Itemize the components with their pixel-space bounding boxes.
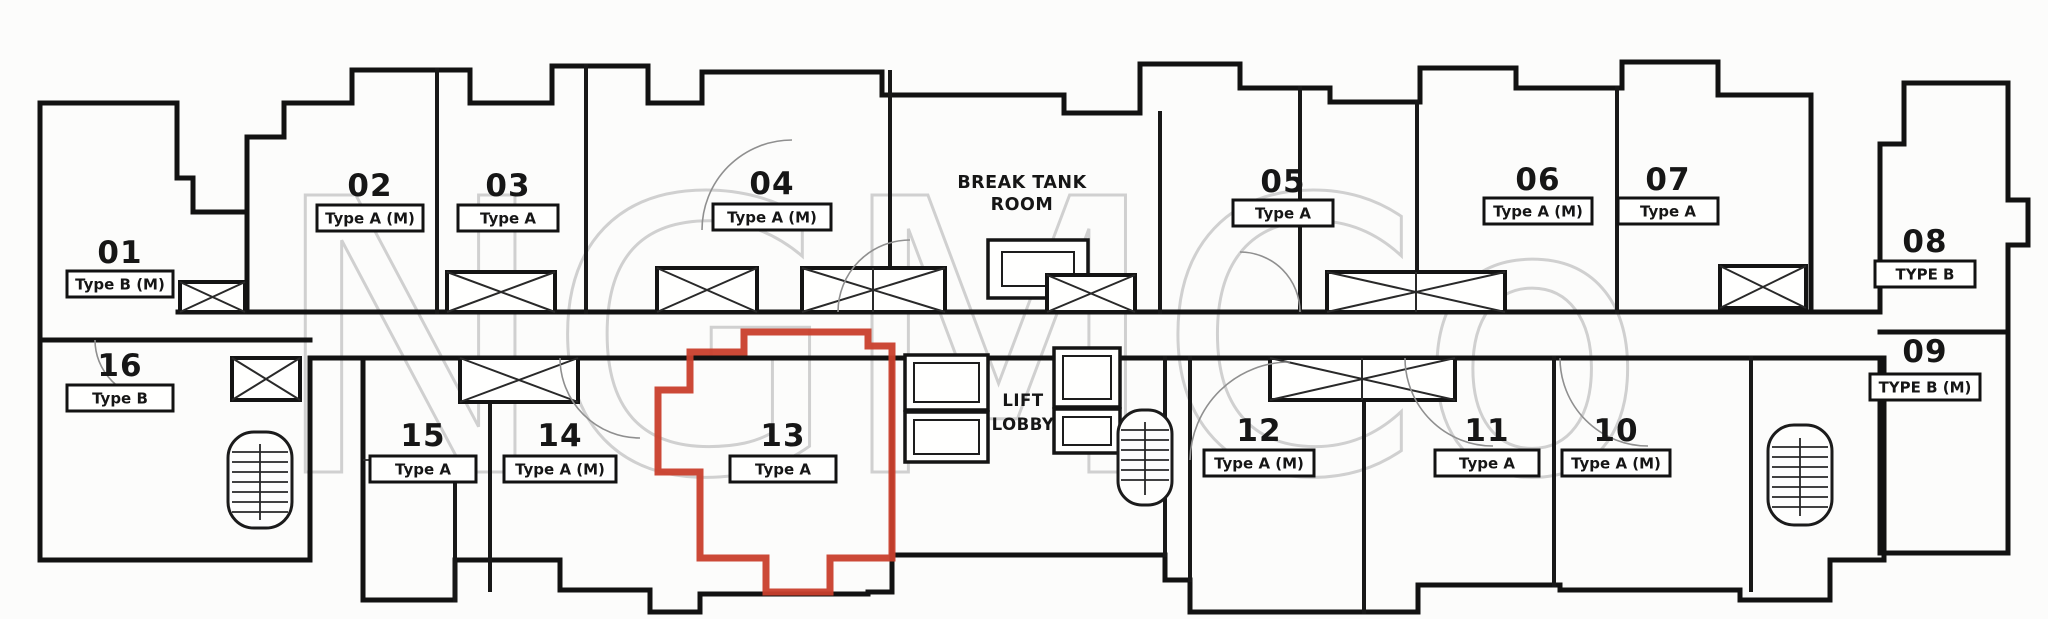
hatch-shaft: [1720, 266, 1806, 308]
stairwell-left: [228, 432, 292, 528]
svg-text:12: 12: [1236, 413, 1281, 449]
svg-text:TYPE B: TYPE B: [1896, 266, 1955, 284]
svg-text:03: 03: [485, 168, 530, 204]
svg-text:08: 08: [1902, 224, 1947, 260]
svg-text:13: 13: [760, 418, 805, 454]
unit-16[interactable]: 16 Type B: [67, 348, 173, 411]
svg-text:04: 04: [749, 166, 794, 202]
svg-text:Type A: Type A: [755, 461, 811, 479]
svg-text:ROOM: ROOM: [991, 195, 1054, 215]
svg-text:09: 09: [1902, 334, 1947, 370]
floorplan-page: NGMCo: [0, 0, 2048, 619]
svg-text:15: 15: [400, 418, 445, 454]
svg-text:01: 01: [97, 235, 142, 271]
floorplan-svg: NGMCo: [0, 0, 2048, 619]
svg-text:Type A (M): Type A (M): [1571, 455, 1661, 473]
svg-text:Type A: Type A: [480, 210, 536, 228]
hatch-shaft: [1327, 272, 1505, 312]
svg-text:Type A: Type A: [395, 461, 451, 479]
svg-text:16: 16: [97, 348, 142, 384]
svg-text:Type A: Type A: [1459, 455, 1515, 473]
unit-08[interactable]: 08 TYPE B: [1875, 224, 1975, 287]
hatch-shaft: [1047, 275, 1135, 312]
svg-text:06: 06: [1515, 162, 1560, 198]
svg-text:Type A (M): Type A (M): [727, 209, 817, 227]
watermark-text: NGMCo: [268, 119, 1642, 562]
svg-text:LIFT: LIFT: [1002, 391, 1043, 410]
svg-text:Type A (M): Type A (M): [1214, 455, 1304, 473]
svg-text:Type B (M): Type B (M): [75, 276, 165, 294]
svg-text:Type A (M): Type A (M): [515, 461, 605, 479]
hatch-shaft: [447, 272, 555, 312]
stairwell-lobby: [1118, 410, 1172, 505]
svg-text:07: 07: [1645, 162, 1690, 198]
svg-text:10: 10: [1593, 413, 1638, 449]
svg-text:11: 11: [1464, 413, 1509, 449]
svg-text:TYPE B (M): TYPE B (M): [1879, 379, 1972, 397]
svg-text:05: 05: [1260, 164, 1305, 200]
svg-text:Type A: Type A: [1255, 205, 1311, 223]
hatch-shaft: [802, 268, 945, 312]
stairwell-right: [1768, 425, 1832, 525]
unit-01[interactable]: 01 Type B (M): [67, 235, 173, 297]
svg-text:14: 14: [537, 418, 582, 454]
hatch-shaft: [1270, 358, 1455, 400]
svg-text:BREAK TANK: BREAK TANK: [957, 173, 1087, 193]
svg-text:Type B: Type B: [92, 390, 148, 408]
svg-text:Type A (M): Type A (M): [1493, 203, 1583, 221]
svg-text:Type A: Type A: [1640, 203, 1696, 221]
svg-text:LOBBY: LOBBY: [992, 415, 1055, 434]
hatch-shaft: [657, 268, 757, 312]
svg-text:02: 02: [347, 168, 392, 204]
svg-text:Type A (M): Type A (M): [325, 210, 415, 228]
hatch-shaft: [180, 282, 245, 312]
hatch-shaft: [232, 358, 300, 400]
